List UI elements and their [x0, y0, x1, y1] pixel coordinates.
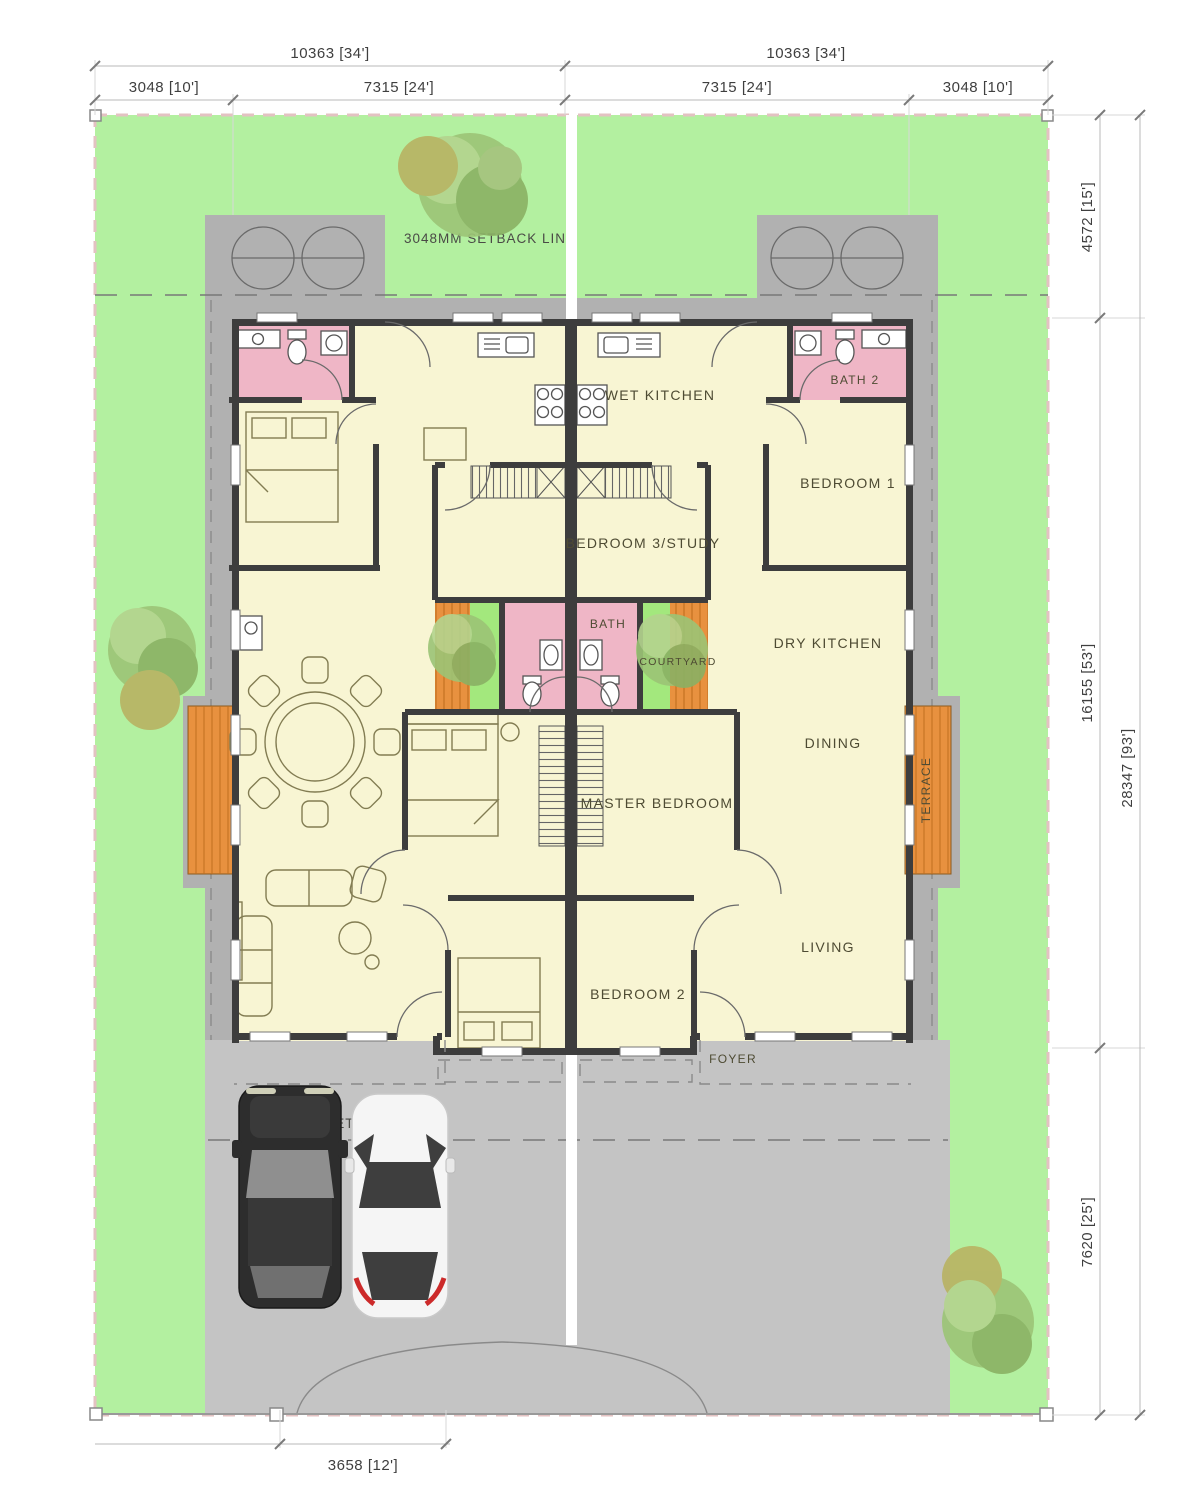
lot-divider-top: [566, 115, 577, 319]
room-label-dry-kitchen: DRY KITCHEN: [774, 635, 883, 651]
room-label-bath2: BATH 2: [831, 373, 880, 387]
house: [188, 313, 951, 1084]
room-label-bath: BATH: [590, 617, 626, 631]
dim-unit-right: 7315 [24']: [702, 79, 772, 96]
room-label-master-bedroom: MASTER BEDROOM: [581, 795, 734, 811]
lot-divider-bottom: [566, 1055, 577, 1345]
room-label-courtyard: COURTYARD: [639, 656, 716, 668]
car-white: [345, 1094, 455, 1318]
floor-plan-svg: 3048MM SETBACK LINE: [0, 0, 1193, 1500]
party-wall: [565, 319, 577, 1055]
dim-unit-left: 7315 [24']: [364, 79, 434, 96]
room-label-dining: DINING: [805, 735, 862, 751]
dim-overall-right: 10363 [34']: [766, 45, 845, 62]
floor-plan: 3048MM SETBACK LINE: [0, 0, 1193, 1500]
car-black: [232, 1086, 348, 1308]
room-label-bedroom1: BEDROOM 1: [800, 475, 896, 491]
dim-side-left: 3048 [10']: [129, 79, 199, 96]
dim-rear-yard: 7620 [25']: [1079, 1197, 1096, 1267]
dim-lot-depth: 28347 [93']: [1119, 728, 1136, 807]
room-label-wet-kitchen: WET KITCHEN: [605, 387, 716, 403]
patio-right: [757, 215, 938, 303]
room-label-terrace: TERRACE: [919, 757, 933, 823]
dim-house-depth: 16155 [53']: [1079, 643, 1096, 722]
terrace-deck-left: [188, 706, 234, 874]
dim-side-right: 3048 [10']: [943, 79, 1013, 96]
room-label-bedroom3-study: BEDROOM 3/STUDY: [566, 535, 721, 551]
dim-front-yard: 4572 [15']: [1079, 182, 1096, 252]
dim-overall-left: 10363 [34']: [290, 45, 369, 62]
room-label-living: LIVING: [801, 939, 855, 955]
dim-gate-width: 3658 [12']: [328, 1457, 398, 1474]
room-label-bedroom2: BEDROOM 2: [590, 986, 686, 1002]
room-label-foyer: FOYER: [709, 1052, 757, 1066]
